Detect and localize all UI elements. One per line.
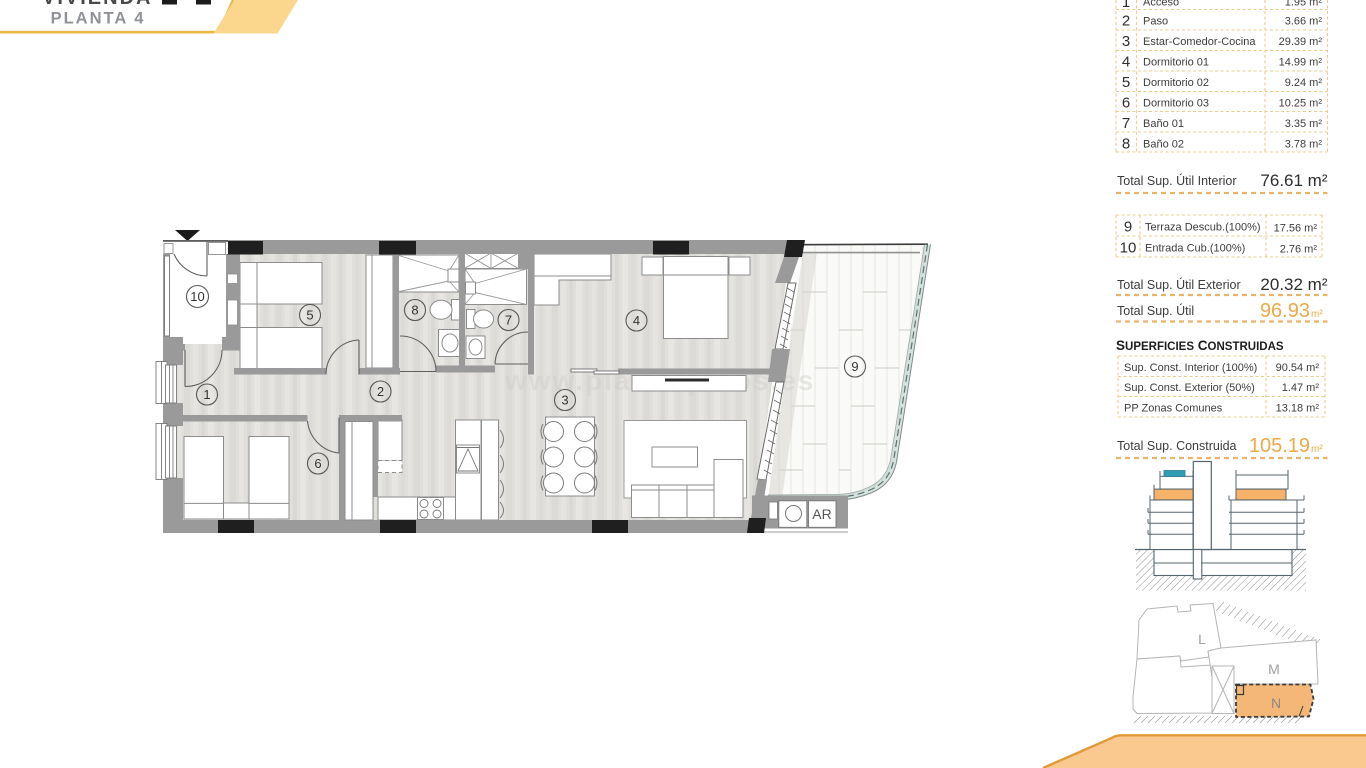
svg-text:SUPERFICIES CONSTRUIDAS: SUPERFICIES CONSTRUIDAS: [1116, 338, 1284, 353]
svg-text:Terraza Descub.(100%): Terraza Descub.(100%): [1145, 222, 1261, 234]
svg-text:PP Zonas Comunes: PP Zonas Comunes: [1124, 403, 1223, 415]
svg-text:Total Sup. Útil Interior: Total Sup. Útil Interior: [1117, 173, 1237, 188]
svg-text:Baño 01: Baño 01: [1143, 118, 1184, 130]
svg-text:6: 6: [314, 456, 321, 471]
svg-text:1: 1: [203, 387, 210, 402]
svg-text:PLANTA 4: PLANTA 4: [51, 10, 146, 28]
svg-text:9.24 m²: 9.24 m²: [1285, 77, 1323, 89]
svg-text:Dormitorio 03: Dormitorio 03: [1143, 98, 1209, 110]
svg-text:105.19: 105.19: [1249, 435, 1310, 457]
svg-text:90.54 m²: 90.54 m²: [1276, 362, 1320, 374]
svg-text:VIVIENDA: VIVIENDA: [42, 0, 152, 9]
svg-text:10: 10: [1120, 240, 1137, 257]
svg-text:8: 8: [1122, 136, 1130, 153]
svg-text:8: 8: [411, 303, 418, 318]
svg-text:3.78 m²: 3.78 m²: [1285, 139, 1323, 151]
svg-text:Total Sup. Útil Exterior: Total Sup. Útil Exterior: [1117, 277, 1241, 292]
svg-text:Entrada Cub.(100%): Entrada Cub.(100%): [1145, 243, 1245, 255]
svg-text:10: 10: [190, 289, 204, 304]
svg-text:M: M: [1268, 661, 1280, 677]
svg-text:Paso: Paso: [1143, 16, 1168, 28]
svg-text:17.56 m²: 17.56 m²: [1274, 223, 1318, 235]
svg-text:3: 3: [561, 393, 568, 408]
svg-text:9: 9: [851, 359, 858, 374]
svg-text:1: 1: [1122, 0, 1130, 11]
svg-text:4: 4: [633, 313, 640, 328]
svg-text:Baño 02: Baño 02: [1143, 139, 1184, 151]
svg-text:7: 7: [1122, 115, 1130, 132]
svg-text:3: 3: [1122, 33, 1130, 50]
svg-text:3.66 m²: 3.66 m²: [1285, 16, 1323, 28]
svg-text:3.35 m²: 3.35 m²: [1285, 118, 1323, 130]
svg-text:7: 7: [505, 313, 512, 328]
svg-text:m²: m²: [1311, 444, 1323, 455]
svg-text:5: 5: [1122, 74, 1130, 91]
svg-text:2.76 m²: 2.76 m²: [1280, 244, 1318, 256]
svg-text:2: 2: [377, 384, 384, 399]
svg-text:Dormitorio 01: Dormitorio 01: [1143, 57, 1209, 69]
svg-text:29.39 m²: 29.39 m²: [1279, 36, 1323, 48]
svg-text:Total Sup. Útil: Total Sup. Útil: [1117, 303, 1194, 318]
svg-text:Estar-Comedor-Cocina: Estar-Comedor-Cocina: [1143, 36, 1256, 48]
svg-text:9: 9: [1124, 219, 1132, 236]
svg-text:m²: m²: [1311, 309, 1323, 320]
svg-text:5: 5: [306, 308, 313, 323]
svg-text:13.18 m²: 13.18 m²: [1276, 403, 1320, 415]
svg-text:20.32 m²: 20.32 m²: [1260, 275, 1327, 294]
svg-text:1.95 m²: 1.95 m²: [1285, 0, 1323, 9]
svg-text:AR: AR: [812, 506, 831, 522]
svg-text:Dormitorio 02: Dormitorio 02: [1143, 77, 1209, 89]
svg-text:Sup. Const. Exterior (50%): Sup. Const. Exterior (50%): [1124, 382, 1255, 394]
svg-text:6: 6: [1122, 95, 1130, 112]
svg-text:Acceso: Acceso: [1143, 0, 1179, 9]
svg-text:10.25 m²: 10.25 m²: [1279, 98, 1323, 110]
svg-text:Sup. Const. Interior (100%): Sup. Const. Interior (100%): [1124, 362, 1257, 374]
svg-text:4: 4: [1122, 54, 1130, 71]
svg-text:L: L: [1198, 631, 1206, 647]
svg-text:14.99 m²: 14.99 m²: [1279, 57, 1323, 69]
svg-text:76.61 m²: 76.61 m²: [1260, 171, 1327, 190]
svg-text:N: N: [1271, 695, 1281, 711]
svg-text:Total Sup. Construida: Total Sup. Construida: [1117, 439, 1237, 453]
svg-text:1.47 m²: 1.47 m²: [1282, 382, 1320, 394]
svg-text:96.93: 96.93: [1260, 300, 1310, 322]
svg-text:2: 2: [1122, 13, 1130, 30]
